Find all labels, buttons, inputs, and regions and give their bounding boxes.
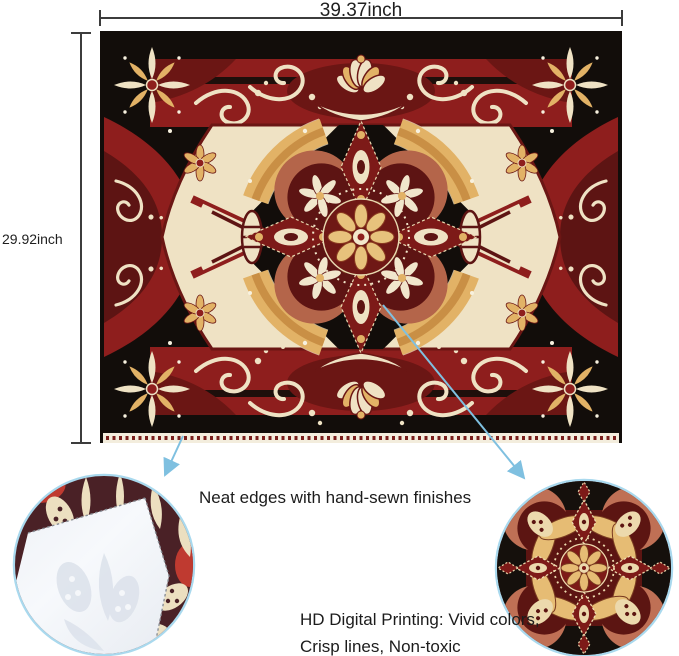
fabric-fold-detail: [8, 469, 200, 656]
corner-motif-bottom-right: [532, 351, 608, 427]
tapestry-image: [100, 31, 622, 443]
height-dimension-line: [69, 31, 93, 445]
product-image-canvas: 39.37inch 29.92inch: [0, 0, 679, 656]
edge-finish-caption: Neat edges with hand-sewn finishes: [199, 488, 471, 508]
printing-caption: HD Digital Printing: Vivid colors, Crisp…: [300, 606, 540, 656]
height-dimension-label: 29.92inch: [2, 231, 74, 247]
central-mandala: [236, 112, 486, 362]
width-dimension-line: [98, 9, 624, 27]
corner-motif-top-right: [532, 47, 608, 123]
corner-motif-bottom-left: [114, 351, 190, 427]
corner-motif-top-left: [114, 47, 190, 123]
printing-caption-line1: HD Digital Printing: Vivid colors,: [300, 606, 540, 633]
printing-caption-line2: Crisp lines, Non-toxic: [300, 633, 540, 656]
edge-detail-circle: [8, 469, 200, 656]
hem-strip: [103, 433, 619, 443]
